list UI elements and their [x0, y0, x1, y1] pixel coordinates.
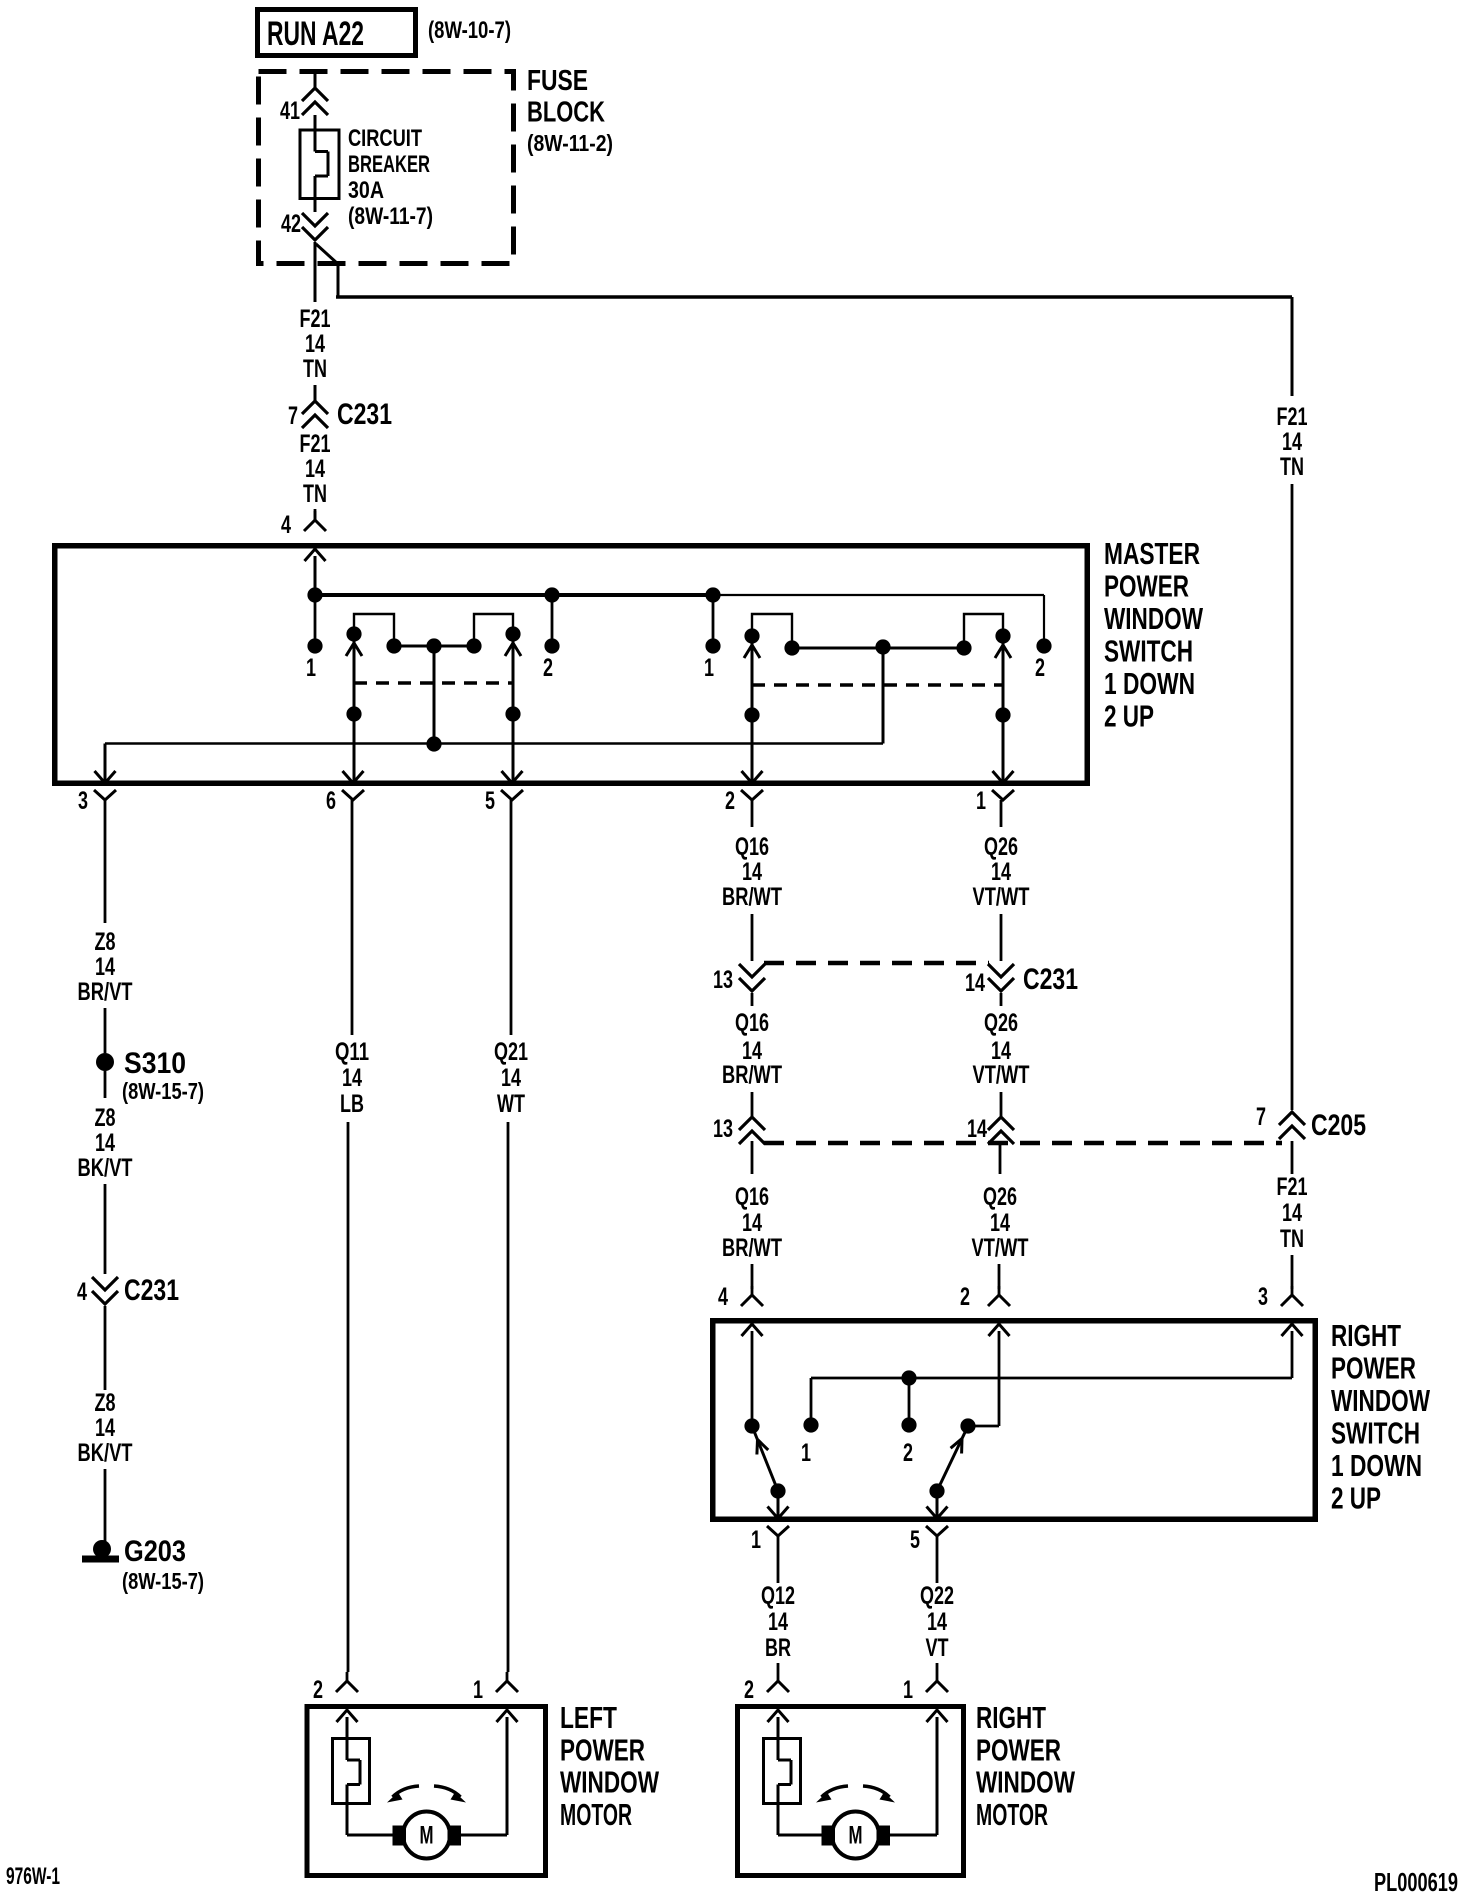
svg-text:BK/VT: BK/VT — [78, 1439, 133, 1467]
svg-text:WINDOW: WINDOW — [976, 1765, 1076, 1800]
svg-text:1: 1 — [903, 1676, 913, 1704]
svg-text:14: 14 — [1282, 1199, 1302, 1227]
svg-text:1: 1 — [976, 787, 986, 815]
svg-text:RIGHT: RIGHT — [1331, 1318, 1401, 1353]
svg-text:BR: BR — [765, 1634, 791, 1662]
svg-text:14: 14 — [342, 1064, 362, 1092]
svg-text:Q11: Q11 — [335, 1038, 369, 1066]
svg-text:SWITCH: SWITCH — [1104, 634, 1193, 669]
svg-text:WINDOW: WINDOW — [560, 1765, 660, 1800]
svg-text:POWER: POWER — [560, 1732, 645, 1767]
svg-text:3: 3 — [1258, 1283, 1268, 1311]
svg-text:Q16: Q16 — [735, 1009, 769, 1037]
svg-text:5: 5 — [485, 787, 495, 815]
svg-text:VT/WT: VT/WT — [973, 883, 1030, 911]
svg-text:Q16: Q16 — [735, 1183, 769, 1211]
svg-text:TN: TN — [1280, 1225, 1304, 1253]
svg-text:14: 14 — [967, 1115, 987, 1143]
svg-text:POWER: POWER — [1331, 1351, 1416, 1386]
svg-text:1: 1 — [306, 654, 316, 682]
svg-text:LB: LB — [340, 1090, 364, 1118]
svg-text:(8W-11-2): (8W-11-2) — [527, 130, 613, 156]
svg-text:WINDOW: WINDOW — [1331, 1383, 1431, 1418]
svg-text:42: 42 — [281, 210, 301, 238]
svg-text:Q12: Q12 — [761, 1582, 795, 1610]
svg-text:POWER: POWER — [976, 1732, 1061, 1767]
svg-text:41: 41 — [280, 97, 300, 125]
svg-text:C205: C205 — [1311, 1109, 1366, 1142]
svg-text:G203: G203 — [124, 1535, 186, 1568]
svg-text:14: 14 — [965, 969, 985, 997]
svg-text:14: 14 — [991, 858, 1011, 886]
svg-text:F21: F21 — [300, 430, 331, 458]
svg-text:Q21: Q21 — [494, 1038, 528, 1066]
svg-text:14: 14 — [95, 1414, 115, 1442]
svg-text:RUN A22: RUN A22 — [267, 15, 364, 53]
svg-text:(8W-11-7): (8W-11-7) — [348, 203, 433, 230]
svg-text:4: 4 — [77, 1278, 87, 1306]
svg-text:5: 5 — [910, 1526, 920, 1554]
svg-text:BR/WT: BR/WT — [722, 883, 782, 911]
svg-text:3: 3 — [78, 787, 88, 815]
svg-text:VT/WT: VT/WT — [973, 1061, 1030, 1089]
svg-text:F21: F21 — [1277, 403, 1308, 431]
svg-text:F21: F21 — [1277, 1173, 1308, 1201]
svg-text:1: 1 — [473, 1676, 483, 1704]
svg-text:13: 13 — [713, 1115, 733, 1143]
svg-text:M: M — [849, 1822, 863, 1850]
svg-text:(8W-15-7): (8W-15-7) — [122, 1078, 204, 1104]
svg-text:13: 13 — [713, 966, 733, 994]
svg-text:Z8: Z8 — [95, 1389, 116, 1417]
svg-text:7: 7 — [288, 402, 298, 430]
svg-text:PL000619: PL000619 — [1374, 1867, 1458, 1897]
svg-text:Q26: Q26 — [984, 1009, 1018, 1037]
svg-text:C231: C231 — [124, 1274, 179, 1307]
svg-text:Q22: Q22 — [920, 1582, 954, 1610]
svg-text:Q26: Q26 — [983, 1183, 1017, 1211]
svg-text:14: 14 — [305, 455, 325, 483]
svg-text:Q26: Q26 — [984, 833, 1018, 861]
svg-text:F21: F21 — [300, 305, 331, 333]
svg-text:RIGHT: RIGHT — [976, 1700, 1046, 1735]
svg-text:2: 2 — [725, 787, 735, 815]
svg-text:1: 1 — [801, 1439, 811, 1467]
svg-text:1 DOWN: 1 DOWN — [1104, 666, 1195, 701]
svg-text:14: 14 — [95, 1129, 115, 1157]
svg-text:14: 14 — [990, 1209, 1010, 1237]
svg-text:BR/WT: BR/WT — [722, 1234, 782, 1262]
svg-text:WT: WT — [497, 1090, 525, 1118]
svg-text:VT: VT — [926, 1634, 949, 1662]
svg-text:6: 6 — [326, 787, 336, 815]
svg-text:4: 4 — [718, 1283, 728, 1311]
svg-text:976W-1: 976W-1 — [6, 1863, 60, 1890]
svg-text:FUSE: FUSE — [527, 65, 588, 97]
svg-text:2: 2 — [1035, 654, 1045, 682]
svg-text:MOTOR: MOTOR — [976, 1797, 1048, 1832]
svg-text:1 DOWN: 1 DOWN — [1331, 1448, 1422, 1483]
svg-text:TN: TN — [303, 480, 327, 508]
svg-text:TN: TN — [303, 355, 327, 383]
svg-text:MOTOR: MOTOR — [560, 1797, 632, 1832]
svg-text:POWER: POWER — [1104, 569, 1189, 604]
svg-text:1: 1 — [704, 654, 714, 682]
svg-text:VT/WT: VT/WT — [972, 1234, 1029, 1262]
svg-text:2: 2 — [960, 1283, 970, 1311]
svg-text:BR/WT: BR/WT — [722, 1061, 782, 1089]
svg-text:2: 2 — [744, 1676, 754, 1704]
svg-text:14: 14 — [501, 1064, 521, 1092]
svg-text:14: 14 — [742, 1209, 762, 1237]
svg-text:BREAKER: BREAKER — [348, 151, 430, 178]
svg-text:LEFT: LEFT — [560, 1700, 617, 1735]
svg-text:BK/VT: BK/VT — [78, 1154, 133, 1182]
svg-text:CIRCUIT: CIRCUIT — [348, 125, 422, 152]
svg-text:M: M — [420, 1822, 434, 1850]
svg-text:2: 2 — [543, 654, 553, 682]
svg-text:SWITCH: SWITCH — [1331, 1416, 1420, 1451]
svg-text:WINDOW: WINDOW — [1104, 601, 1204, 636]
svg-text:(8W-15-7): (8W-15-7) — [122, 1568, 204, 1594]
svg-text:BLOCK: BLOCK — [527, 97, 605, 129]
svg-text:14: 14 — [1282, 428, 1302, 456]
svg-text:14: 14 — [768, 1608, 788, 1636]
svg-text:2: 2 — [903, 1439, 913, 1467]
svg-text:14: 14 — [927, 1608, 947, 1636]
svg-text:4: 4 — [281, 511, 291, 539]
svg-text:BR/VT: BR/VT — [78, 978, 133, 1006]
svg-text:C231: C231 — [337, 398, 392, 431]
svg-text:MASTER: MASTER — [1104, 536, 1200, 571]
svg-text:(8W-10-7): (8W-10-7) — [428, 17, 511, 44]
svg-text:30A: 30A — [348, 177, 384, 204]
svg-text:1: 1 — [751, 1526, 761, 1554]
svg-text:7: 7 — [1256, 1103, 1266, 1131]
svg-text:Z8: Z8 — [95, 1104, 116, 1132]
svg-text:2 UP: 2 UP — [1331, 1481, 1381, 1516]
svg-text:TN: TN — [1280, 453, 1304, 481]
svg-text:Z8: Z8 — [95, 928, 116, 956]
svg-text:2 UP: 2 UP — [1104, 699, 1154, 734]
svg-text:Q16: Q16 — [735, 833, 769, 861]
svg-text:S310: S310 — [124, 1047, 186, 1080]
svg-text:14: 14 — [305, 330, 325, 358]
svg-text:14: 14 — [742, 858, 762, 886]
svg-text:C231: C231 — [1023, 963, 1078, 996]
svg-text:2: 2 — [313, 1676, 323, 1704]
svg-text:14: 14 — [95, 953, 115, 981]
